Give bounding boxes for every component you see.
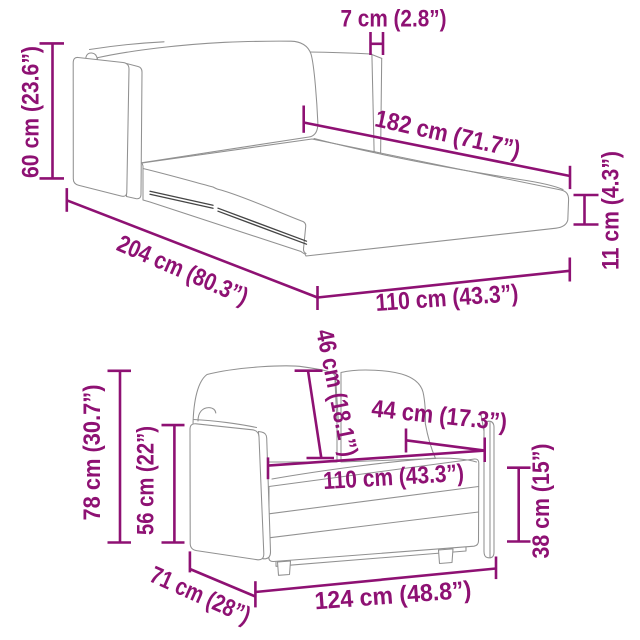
svg-text:78 cm (30.7”): 78 cm (30.7”) xyxy=(79,385,106,521)
svg-text:7 cm (2.8”): 7 cm (2.8”) xyxy=(341,6,447,33)
svg-text:56 cm (22”): 56 cm (22”) xyxy=(133,426,160,535)
svg-text:38 cm (15”): 38 cm (15”) xyxy=(528,444,555,559)
svg-text:60 cm (23.6”): 60 cm (23.6”) xyxy=(18,46,45,178)
svg-text:11 cm (4.3”): 11 cm (4.3”) xyxy=(598,151,625,270)
